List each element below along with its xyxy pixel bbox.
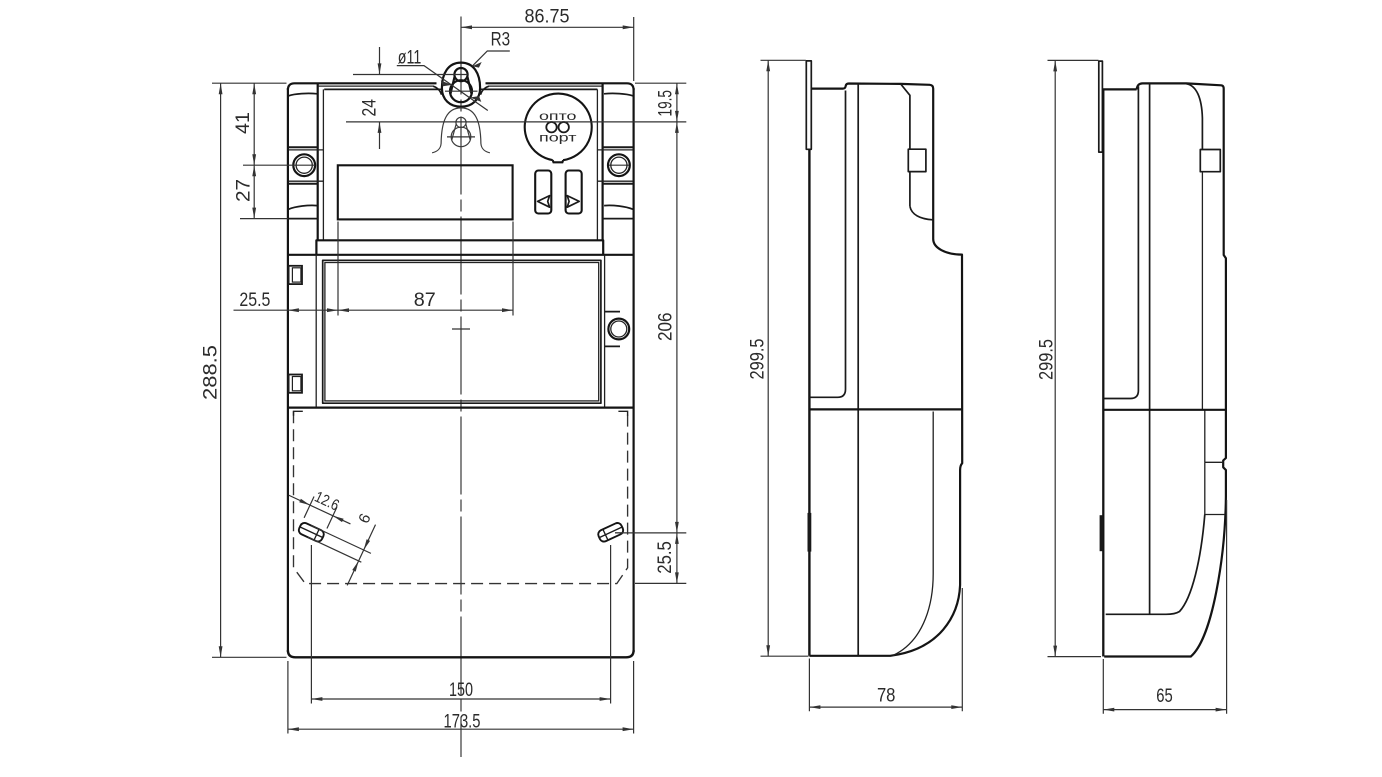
svg-text:25.5: 25.5 — [239, 290, 270, 311]
svg-text:288.5: 288.5 — [201, 345, 222, 400]
svg-text:24: 24 — [360, 99, 381, 117]
svg-text:19.5: 19.5 — [655, 90, 676, 117]
svg-text:173.5: 173.5 — [444, 712, 481, 733]
svg-text:25.5: 25.5 — [655, 541, 676, 574]
svg-text:206: 206 — [656, 313, 677, 342]
svg-text:41: 41 — [233, 112, 254, 134]
svg-text:ø11: ø11 — [398, 48, 422, 69]
svg-text:87: 87 — [414, 290, 436, 311]
svg-text:65: 65 — [1156, 686, 1173, 707]
svg-text:78: 78 — [877, 686, 896, 707]
svg-text:27: 27 — [234, 179, 255, 202]
svg-text:150: 150 — [449, 680, 473, 701]
svg-text:86.75: 86.75 — [525, 7, 570, 28]
svg-text:порт: порт — [539, 133, 578, 145]
svg-text:299.5: 299.5 — [748, 339, 769, 380]
svg-text:299.5: 299.5 — [1037, 339, 1058, 380]
svg-text:опто: опто — [539, 111, 577, 123]
svg-text:R3: R3 — [491, 30, 511, 51]
